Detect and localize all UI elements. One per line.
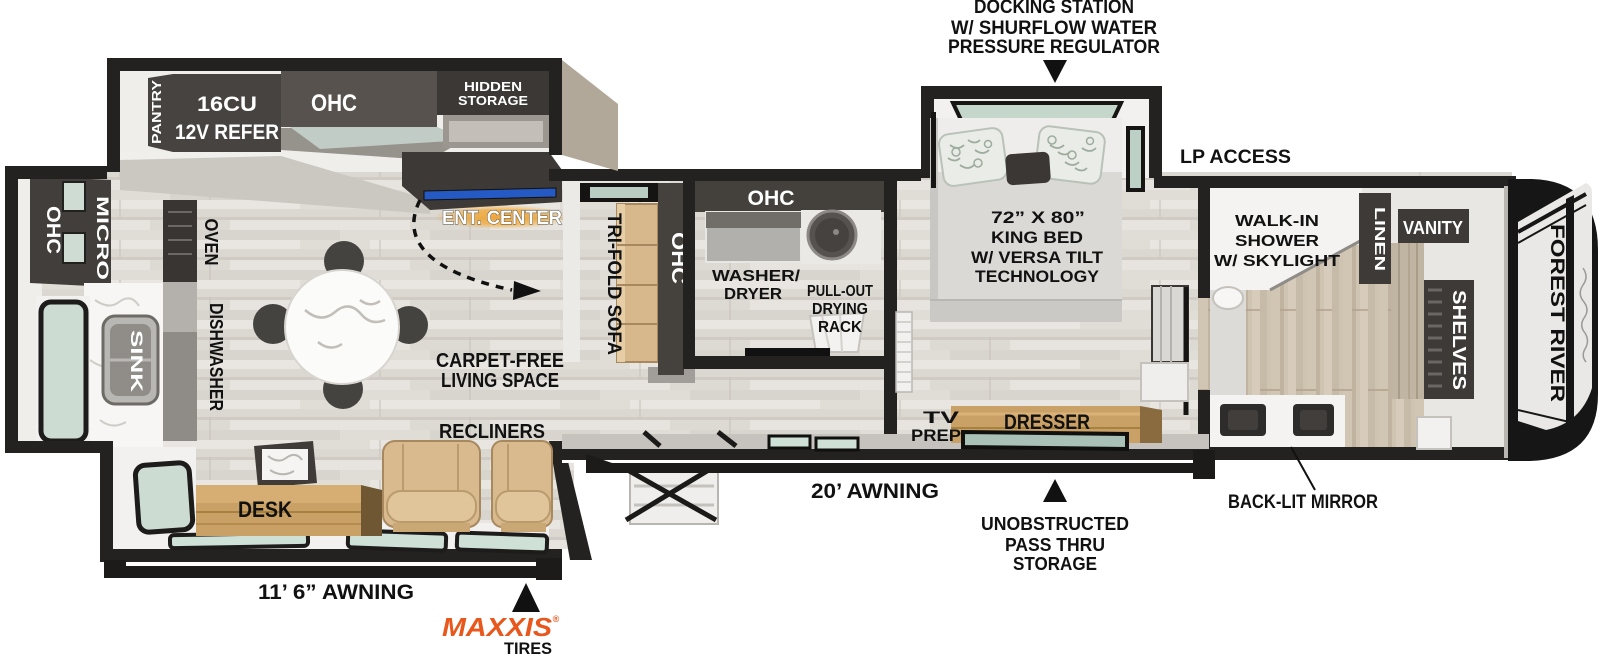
svg-text:KING BED: KING BED (991, 228, 1083, 247)
svg-text:SHOWER: SHOWER (1235, 233, 1320, 250)
svg-text:PULL-OUT: PULL-OUT (807, 283, 873, 300)
svg-text:RACK: RACK (818, 319, 862, 336)
svg-text:DOCKING STATION: DOCKING STATION (974, 0, 1134, 18)
svg-text:LIVING SPACE: LIVING SPACE (441, 370, 559, 392)
svg-text:W/ SKYLIGHT: W/ SKYLIGHT (1214, 253, 1340, 270)
svg-text:MICRO: MICRO (93, 196, 112, 280)
svg-text:CARPET-FREE: CARPET-FREE (436, 350, 564, 372)
svg-text:OHC: OHC (42, 206, 63, 254)
svg-text:W/ VERSA TILT: W/ VERSA TILT (971, 248, 1104, 267)
svg-text:72” X 80”: 72” X 80” (991, 208, 1085, 227)
svg-text:WASHER/: WASHER/ (712, 268, 801, 285)
svg-text:BACK-LIT MIRROR: BACK-LIT MIRROR (1228, 492, 1378, 513)
svg-text:PRESSURE REGULATOR: PRESSURE REGULATOR (948, 37, 1160, 58)
svg-text:W/ SHURFLOW WATER: W/ SHURFLOW WATER (951, 18, 1157, 39)
svg-text:HIDDEN: HIDDEN (464, 79, 522, 94)
svg-text:VANITY: VANITY (1403, 218, 1463, 238)
svg-text:11’ 6” AWNING: 11’ 6” AWNING (258, 581, 414, 604)
svg-text:STORAGE: STORAGE (458, 93, 528, 108)
svg-text:DESK: DESK (238, 497, 292, 522)
svg-text:OHC: OHC (311, 90, 357, 117)
svg-text:PASS THRU: PASS THRU (1005, 535, 1105, 555)
svg-text:TV: TV (923, 408, 960, 427)
svg-text:STORAGE: STORAGE (1013, 554, 1097, 574)
svg-text:OHC: OHC (748, 187, 795, 210)
svg-text:TIRES: TIRES (504, 639, 552, 655)
svg-text:DISHWASHER: DISHWASHER (206, 303, 226, 411)
svg-text:16CU: 16CU (197, 93, 257, 116)
svg-text:TECHNOLOGY: TECHNOLOGY (975, 267, 1100, 286)
svg-text:DRYING: DRYING (812, 301, 868, 318)
svg-text:PREP: PREP (911, 426, 961, 445)
svg-text:WALK-IN: WALK-IN (1235, 213, 1319, 230)
svg-text:®: ® (553, 614, 560, 624)
svg-text:ENT. CENTER: ENT. CENTER (442, 208, 562, 229)
svg-text:20’ AWNING: 20’ AWNING (811, 480, 939, 503)
svg-text:12V REFER: 12V REFER (175, 121, 279, 144)
svg-text:UNOBSTRUCTED: UNOBSTRUCTED (981, 514, 1129, 534)
svg-text:TRI-FOLD SOFA: TRI-FOLD SOFA (603, 213, 624, 355)
svg-text:SHELVES: SHELVES (1449, 290, 1469, 390)
svg-text:DRYER: DRYER (724, 286, 782, 303)
svg-text:FOREST RIVER: FOREST RIVER (1546, 224, 1567, 402)
svg-text:RECLINERS: RECLINERS (439, 421, 545, 443)
svg-text:PANTRY: PANTRY (149, 80, 164, 144)
svg-text:LINEN: LINEN (1371, 207, 1388, 271)
svg-text:SINK: SINK (127, 330, 146, 393)
svg-text:LP ACCESS: LP ACCESS (1180, 147, 1291, 168)
svg-text:OVEN: OVEN (201, 219, 221, 266)
svg-text:DRESSER: DRESSER (1004, 411, 1090, 434)
svg-text:MAXXIS: MAXXIS (442, 612, 553, 642)
